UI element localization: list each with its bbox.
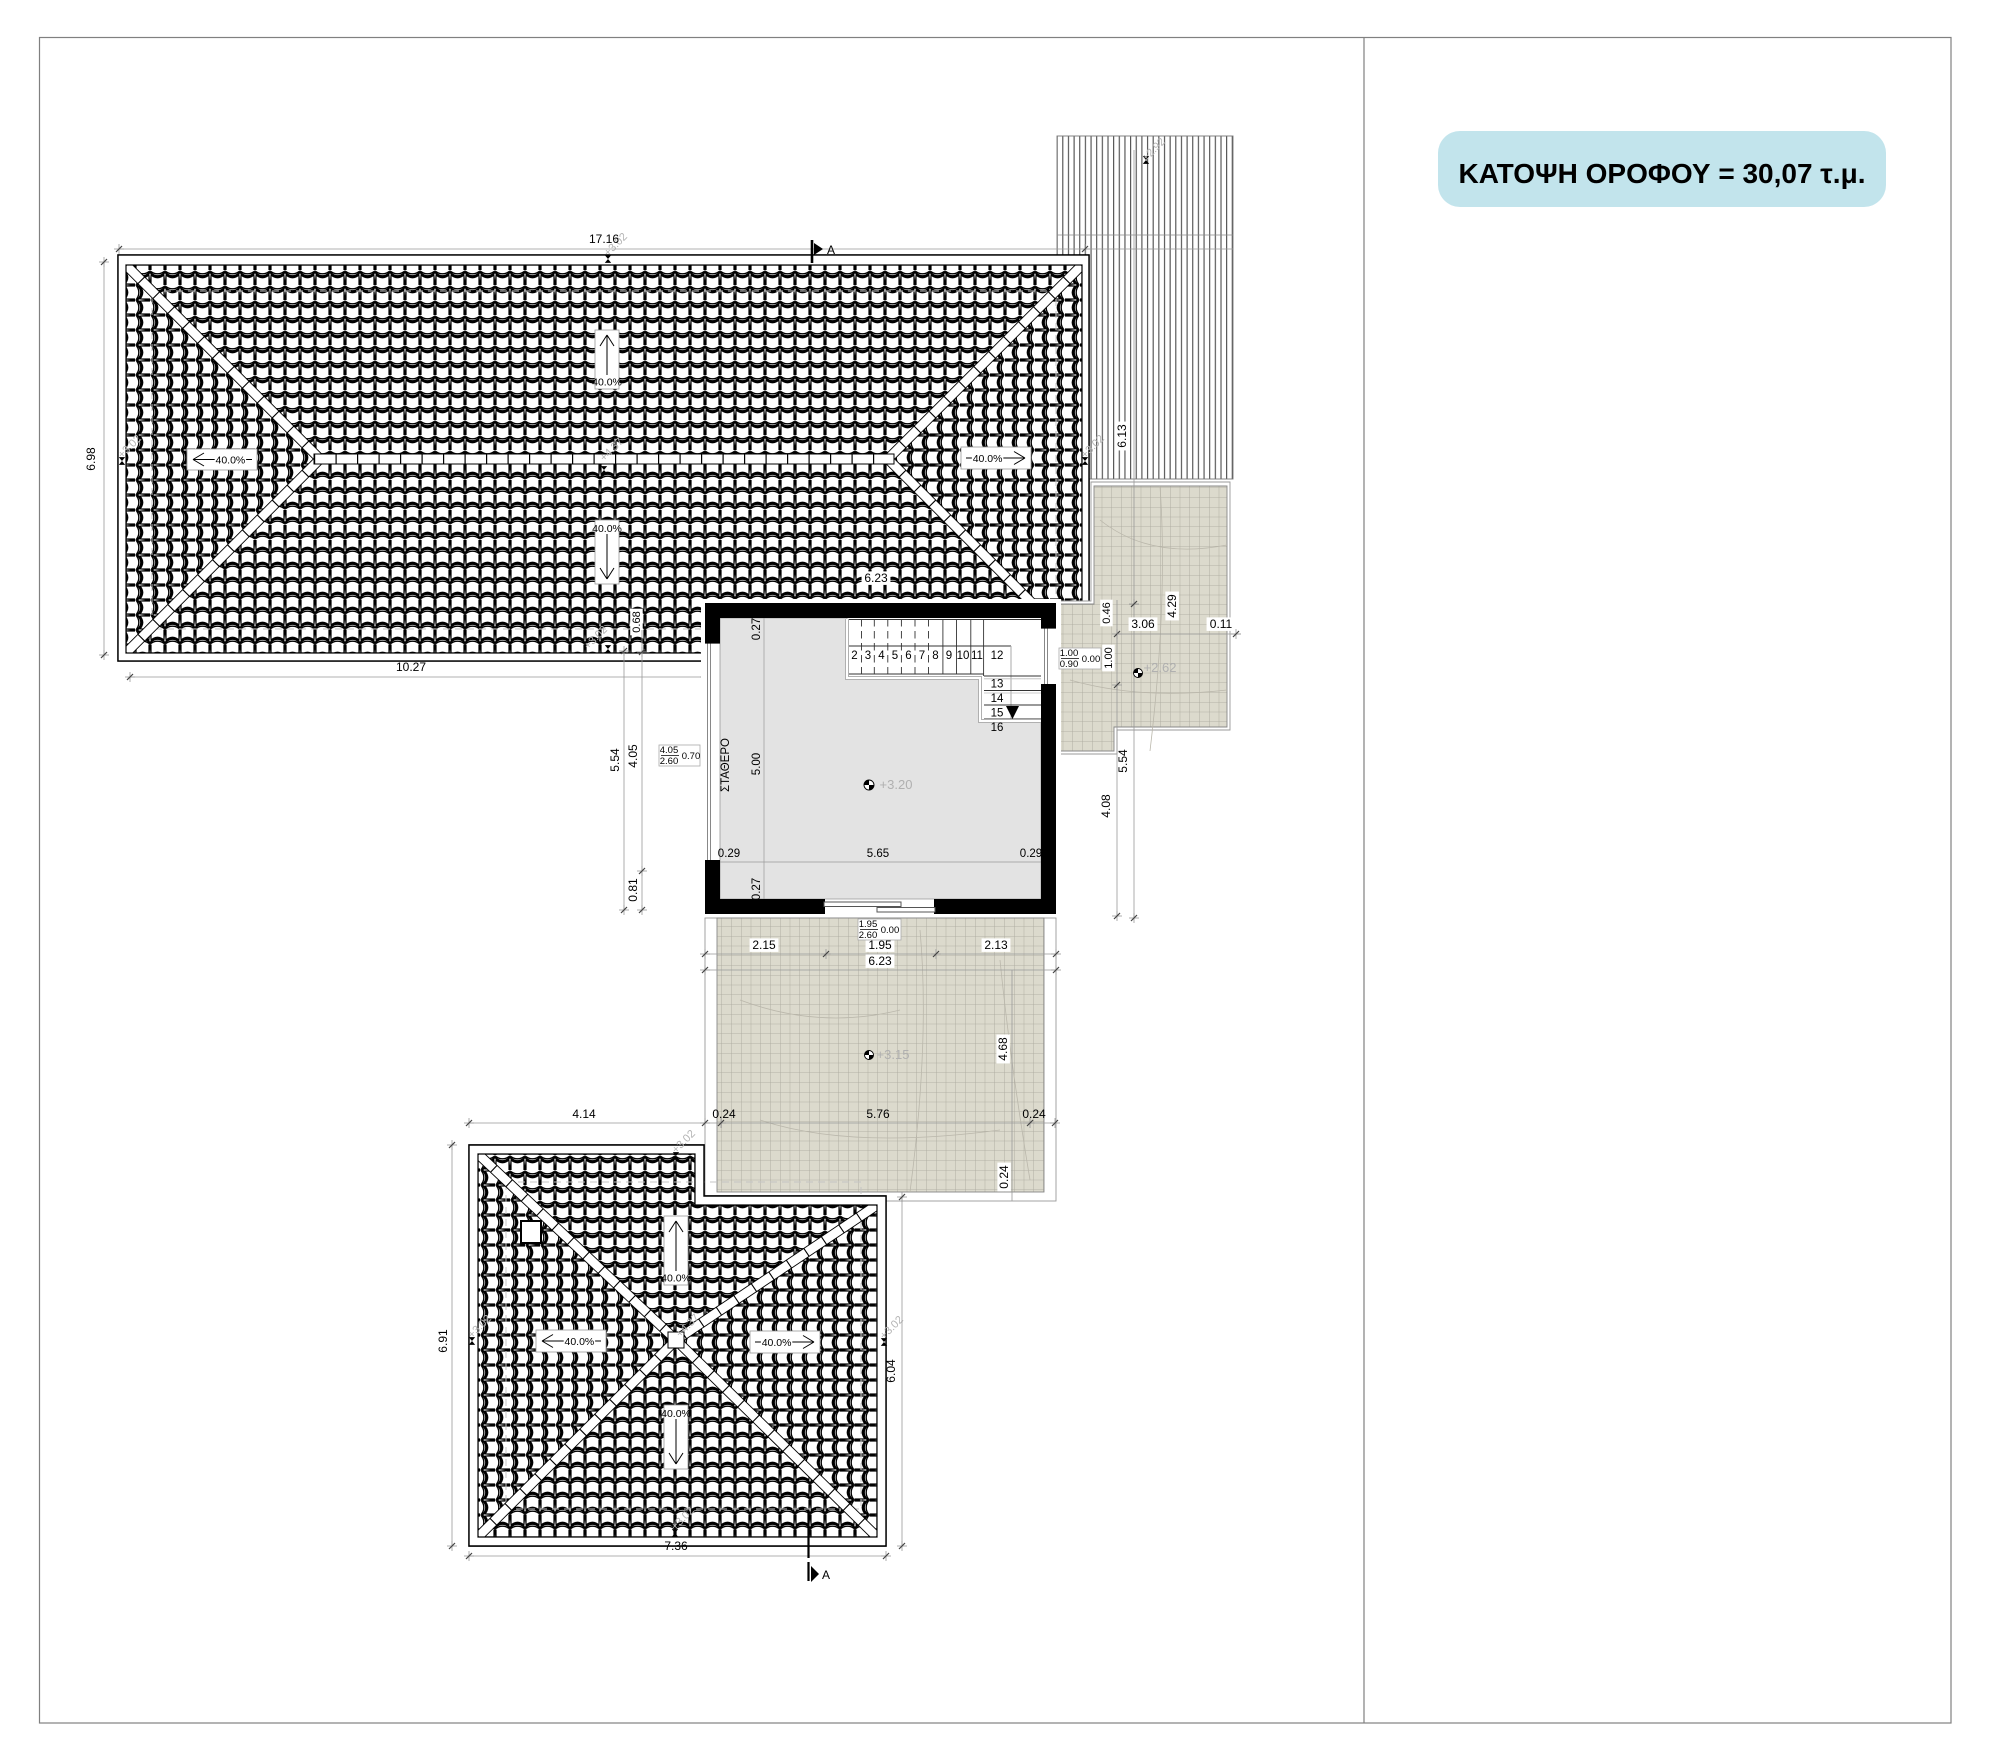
svg-text:6.98: 6.98 [84, 447, 98, 471]
svg-text:0.70: 0.70 [682, 751, 701, 762]
svg-text:ΚΑΤΟΨΗ ΟΡΟΦΟΥ = 30,07 τ.μ.: ΚΑΤΟΨΗ ΟΡΟΦΟΥ = 30,07 τ.μ. [1459, 158, 1866, 189]
svg-text:6.91: 6.91 [436, 1329, 450, 1353]
svg-text:10.27: 10.27 [396, 660, 426, 674]
svg-text:+3.15: +3.15 [877, 1047, 910, 1062]
svg-text:0.24: 0.24 [712, 1107, 736, 1121]
svg-text:2: 2 [851, 650, 857, 662]
svg-text:2.60: 2.60 [859, 930, 878, 941]
svg-text:4.14: 4.14 [572, 1107, 596, 1121]
svg-text:0.27: 0.27 [751, 878, 763, 900]
svg-text:+3.20: +3.20 [880, 777, 913, 792]
svg-text:5: 5 [892, 650, 898, 662]
svg-text:0.00: 0.00 [881, 925, 900, 936]
svg-text:6.04: 6.04 [884, 1359, 898, 1383]
svg-text:4: 4 [878, 650, 885, 662]
svg-text:0.24: 0.24 [997, 1165, 1011, 1189]
svg-text:0.27: 0.27 [751, 618, 763, 640]
svg-text:5.54: 5.54 [608, 748, 622, 772]
svg-text:0.68: 0.68 [631, 611, 643, 632]
svg-text:40.0%: 40.0% [661, 1273, 691, 1285]
svg-text:17.16: 17.16 [589, 232, 619, 246]
svg-text:8: 8 [932, 650, 938, 662]
svg-text:A: A [827, 243, 835, 257]
svg-text:4.68: 4.68 [996, 1037, 1010, 1061]
svg-text:3.06: 3.06 [1131, 617, 1155, 631]
svg-text:6.23: 6.23 [864, 571, 888, 585]
svg-text:0.46: 0.46 [1101, 602, 1113, 623]
svg-text:4.08: 4.08 [1099, 794, 1113, 818]
svg-text:14: 14 [991, 693, 1004, 705]
svg-text:3: 3 [865, 650, 871, 662]
svg-text:13: 13 [991, 679, 1004, 691]
svg-text:1.00: 1.00 [1103, 647, 1115, 668]
svg-text:1.00: 1.00 [1060, 648, 1079, 659]
svg-text:6: 6 [905, 650, 911, 662]
svg-text:7: 7 [919, 650, 925, 662]
svg-text:4.29: 4.29 [1165, 594, 1179, 618]
svg-text:15: 15 [991, 708, 1004, 720]
svg-text:6.13: 6.13 [1115, 424, 1129, 448]
svg-text:ΣΤΑΘΕΡΟ: ΣΤΑΘΕΡΟ [720, 738, 732, 792]
svg-text:9: 9 [946, 650, 952, 662]
svg-text:2.15: 2.15 [752, 938, 776, 952]
svg-text:40.0%: 40.0% [762, 1337, 792, 1349]
svg-text:11: 11 [971, 650, 983, 662]
svg-text:40.0%: 40.0% [565, 1336, 595, 1348]
svg-text:2.60: 2.60 [660, 756, 679, 767]
svg-text:5.65: 5.65 [867, 848, 889, 860]
svg-text:5.00: 5.00 [751, 753, 763, 775]
svg-text:16: 16 [991, 722, 1004, 734]
svg-text:A: A [822, 1568, 830, 1582]
svg-text:40.0%: 40.0% [592, 523, 622, 535]
svg-text:7.36: 7.36 [664, 1539, 688, 1553]
svg-text:0.29: 0.29 [1020, 848, 1042, 860]
svg-text:40.0%: 40.0% [592, 377, 622, 389]
svg-text:5.54: 5.54 [1116, 749, 1130, 773]
svg-text:5.76: 5.76 [866, 1107, 890, 1121]
svg-text:0.00: 0.00 [1082, 654, 1101, 665]
svg-text:0.11: 0.11 [1210, 617, 1233, 631]
svg-text:4.05: 4.05 [626, 744, 640, 768]
svg-text:12: 12 [991, 650, 1004, 662]
svg-text:+2.62: +2.62 [1144, 660, 1177, 675]
svg-text:0.24: 0.24 [1022, 1107, 1046, 1121]
svg-text:4.05: 4.05 [660, 745, 679, 756]
svg-text:40.0%: 40.0% [973, 453, 1003, 465]
svg-text:40.0%: 40.0% [216, 454, 246, 466]
svg-text:10: 10 [957, 650, 970, 662]
svg-text:40.0%: 40.0% [661, 1408, 691, 1420]
svg-text:0.81: 0.81 [626, 878, 640, 902]
svg-text:0.29: 0.29 [718, 848, 740, 860]
svg-text:6.23: 6.23 [868, 954, 892, 968]
svg-text:1.95: 1.95 [859, 919, 878, 930]
svg-text:0.90: 0.90 [1060, 659, 1079, 670]
svg-text:2.13: 2.13 [984, 938, 1008, 952]
